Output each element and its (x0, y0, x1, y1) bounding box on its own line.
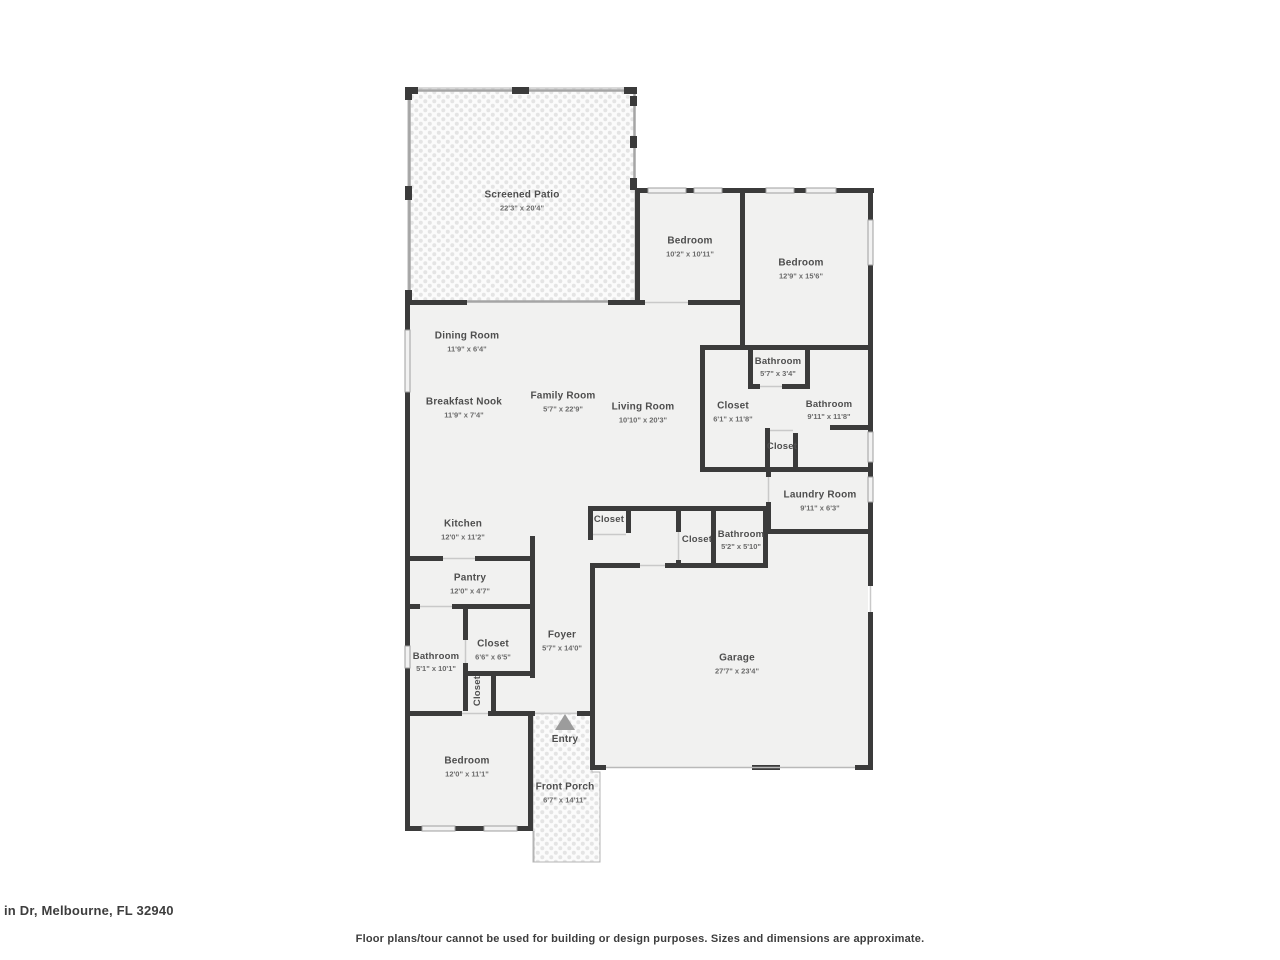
floor-plan: Screened Patio22'3" x 20'4" Bedroom10'2"… (0, 0, 1280, 960)
property-address: in Dr, Melbourne, FL 32940 (4, 903, 174, 918)
front-porch-area (533, 713, 600, 862)
disclaimer-text: Floor plans/tour cannot be used for buil… (0, 933, 1280, 945)
floorplan-drawing (0, 0, 1280, 960)
screened-patio-area (405, 87, 637, 302)
